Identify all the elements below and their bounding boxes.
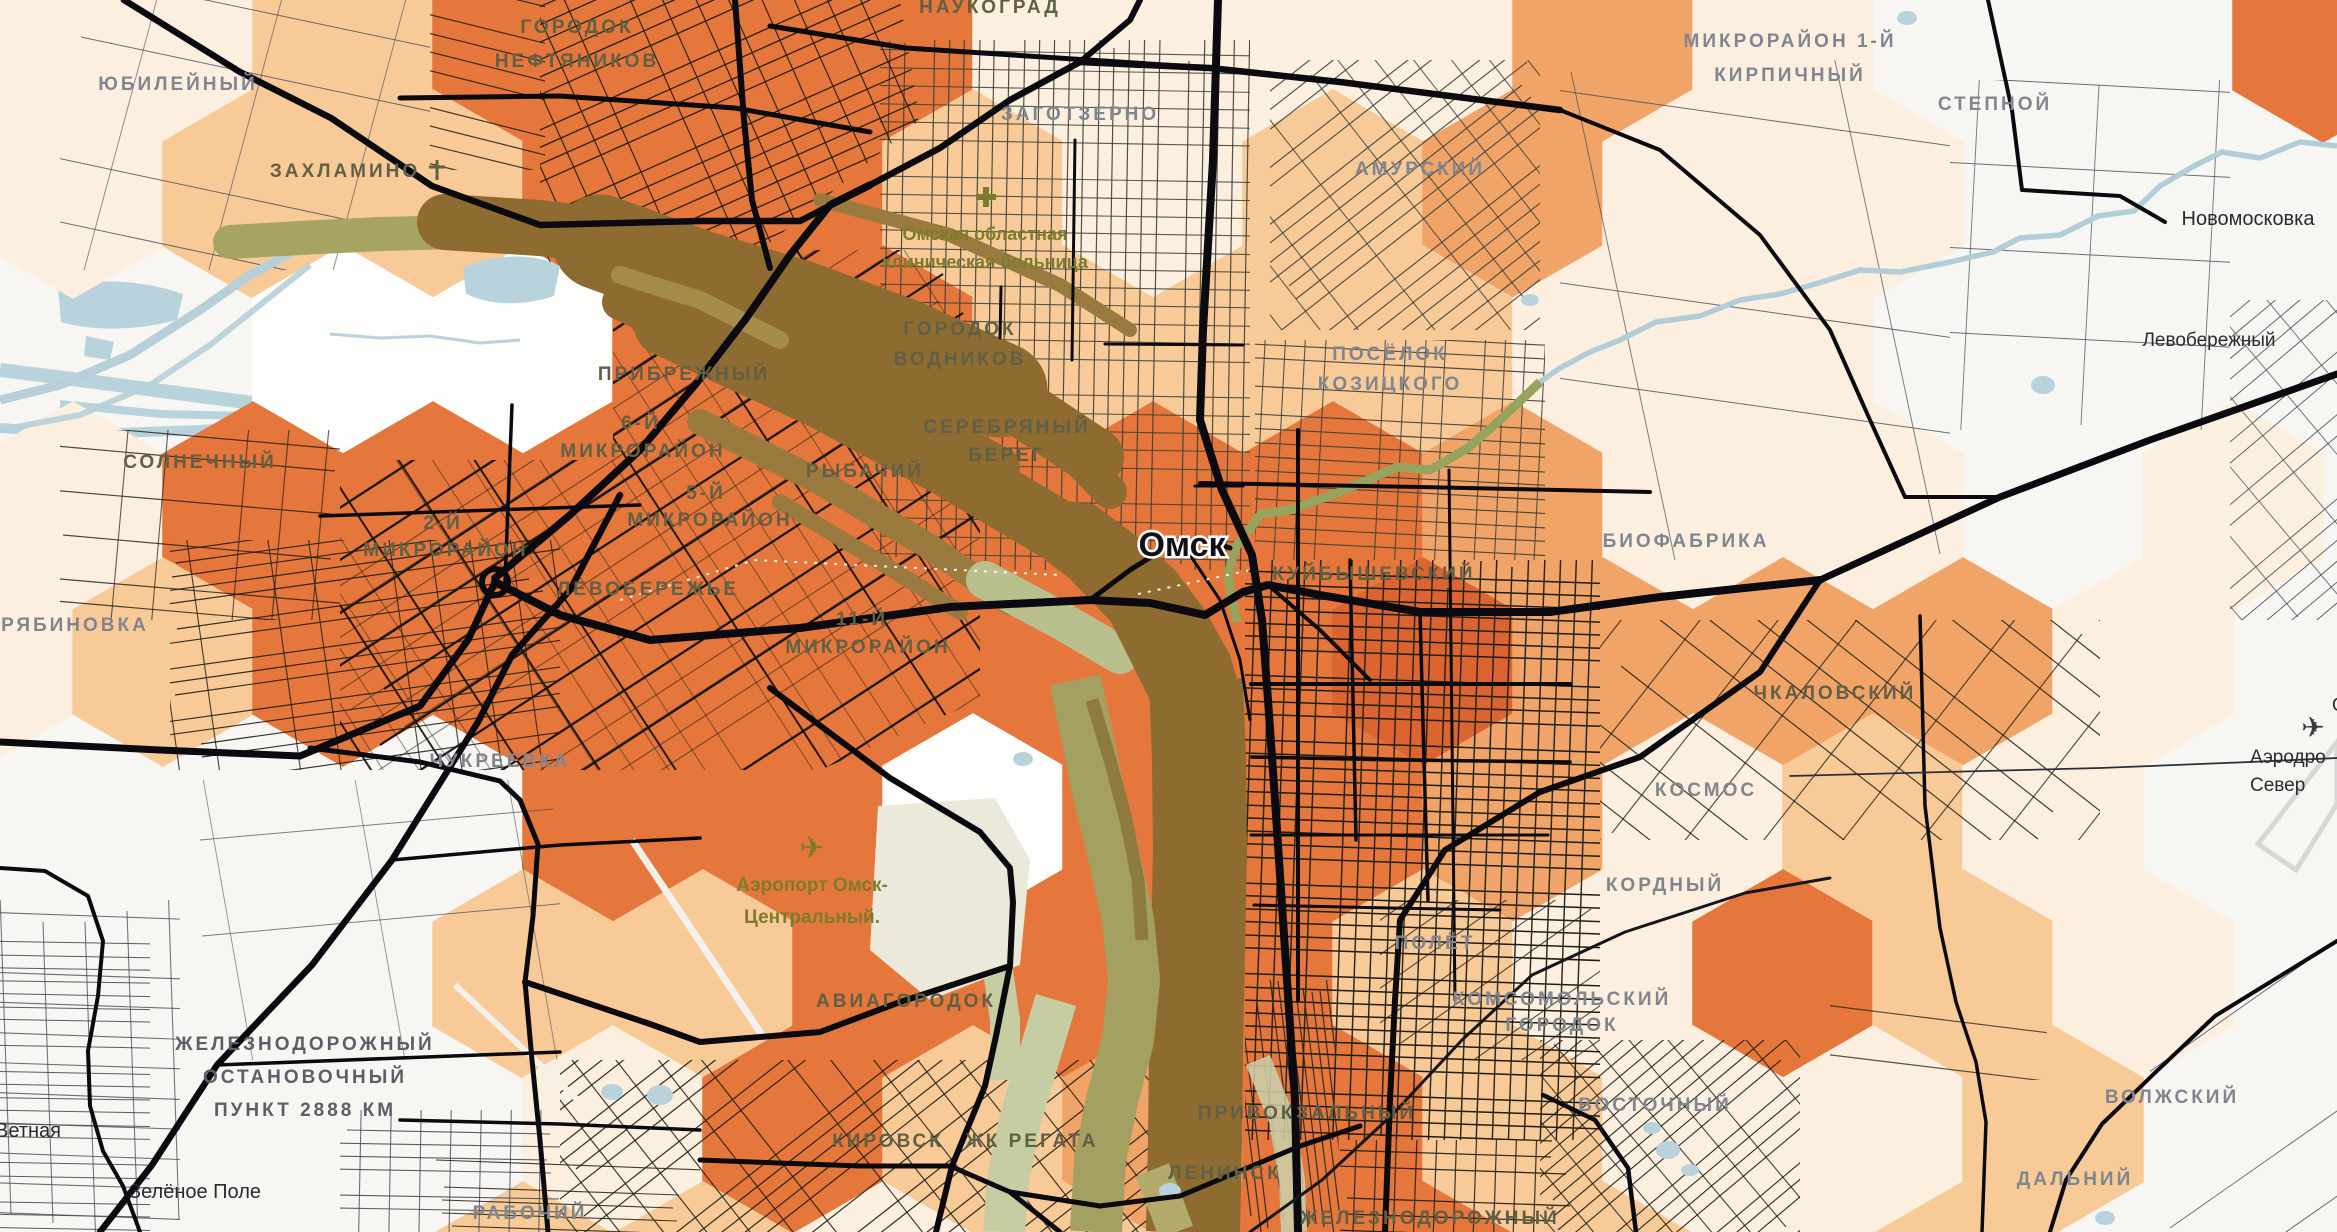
svg-text:ЖЕЛЕЗНОДОРОЖНЫЙ: ЖЕЛЕЗНОДОРОЖНЫЙ xyxy=(174,1033,434,1055)
svg-text:Аэродро: Аэродро xyxy=(2250,747,2326,768)
svg-text:ВОДНИКОВ: ВОДНИКОВ xyxy=(894,349,1027,370)
svg-text:АМУРСКИЙ: АМУРСКИЙ xyxy=(1355,158,1485,180)
svg-text:клиническая больница: клиническая больница xyxy=(882,252,1089,272)
svg-text:ОСТАНОВОЧНЫЙ: ОСТАНОВОЧНЫЙ xyxy=(203,1066,407,1088)
svg-text:11-Й: 11-Й xyxy=(836,608,888,630)
svg-text:СОЛНЕЧНЫЙ: СОЛНЕЧНЫЙ xyxy=(123,451,277,473)
svg-text:✈: ✈ xyxy=(799,832,824,865)
svg-text:ГОРОДОК: ГОРОДОК xyxy=(520,17,633,38)
svg-text:ЛЕНИНСК: ЛЕНИНСК xyxy=(1168,1163,1281,1184)
svg-text:Ветная: Ветная xyxy=(0,1120,61,1142)
svg-text:СЕРЕБРЯНЫЙ: СЕРЕБРЯНЫЙ xyxy=(923,416,1090,438)
svg-text:НЕФТЯНИКОВ: НЕФТЯНИКОВ xyxy=(495,51,659,72)
svg-text:РЫБАЧИЙ: РЫБАЧИЙ xyxy=(806,460,924,482)
svg-text:ЮБИЛЕЙНЫЙ: ЮБИЛЕЙНЫЙ xyxy=(98,73,258,95)
svg-text:Левобережный: Левобережный xyxy=(2142,330,2275,351)
svg-text:КОЗИЦКОГО: КОЗИЦКОГО xyxy=(1318,374,1463,395)
svg-text:ДАЛЬНИЙ: ДАЛЬНИЙ xyxy=(2017,1168,2134,1190)
svg-text:КИРОВСК: КИРОВСК xyxy=(832,1131,944,1152)
svg-text:Центральный.: Центральный. xyxy=(744,907,880,928)
svg-text:ПУНКТ 2888 КМ: ПУНКТ 2888 КМ xyxy=(214,1100,396,1121)
svg-text:Новомосковка: Новомосковка xyxy=(2182,208,2316,230)
svg-text:2-Й: 2-Й xyxy=(423,512,463,534)
svg-text:ВОЛЖСКИЙ: ВОЛЖСКИЙ xyxy=(2105,1086,2239,1108)
svg-text:Омская областная: Омская областная xyxy=(903,224,1068,244)
svg-text:Север: Север xyxy=(2250,775,2305,796)
svg-text:МИКРОРАЙОН: МИКРОРАЙОН xyxy=(627,509,792,531)
svg-text:ЗАХЛАМИНО: ЗАХЛАМИНО xyxy=(270,161,420,182)
svg-text:ЗАГОТЗЕРНО: ЗАГОТЗЕРНО xyxy=(1001,104,1159,125)
svg-text:ПРИБРЕЖНЫЙ: ПРИБРЕЖНЫЙ xyxy=(598,363,770,385)
svg-text:ПОЛЁТ: ПОЛЁТ xyxy=(1395,933,1476,954)
svg-text:ЖЕЛЕЗНОДОРОЖНЫЙ: ЖЕЛЕЗНОДОРОЖНЫЙ xyxy=(1299,1207,1559,1229)
svg-text:МИКРОРАЙОН: МИКРОРАЙОН xyxy=(363,539,528,561)
svg-text:✈: ✈ xyxy=(2301,712,2324,743)
svg-text:КИРПИЧНЫЙ: КИРПИЧНЫЙ xyxy=(1714,64,1866,86)
svg-text:НАУКОГРАД: НАУКОГРАД xyxy=(919,0,1061,18)
svg-text:5-Й: 5-Й xyxy=(686,482,726,504)
svg-text:ЖК РЕГАТА: ЖК РЕГАТА xyxy=(965,1131,1099,1152)
svg-text:АВИАГОРОДОК: АВИАГОРОДОК xyxy=(816,991,996,1012)
svg-text:ПРИВОКЗАЛЬНЫЙ: ПРИВОКЗАЛЬНЫЙ xyxy=(1198,1102,1416,1124)
svg-text:КОСМОС: КОСМОС xyxy=(1655,780,1757,801)
svg-text:ПОСЁЛОК: ПОСЁЛОК xyxy=(1332,344,1448,365)
svg-text:РАБОЧИЙ: РАБОЧИЙ xyxy=(473,1202,588,1224)
svg-text:ЛЕВОБЕРЕЖЬЕ: ЛЕВОБЕРЕЖЬЕ xyxy=(557,579,739,600)
svg-text:Омск: Омск xyxy=(1138,526,1226,564)
svg-text:РЯБИНОВКА: РЯБИНОВКА xyxy=(1,615,149,636)
svg-text:КОРДНЫЙ: КОРДНЫЙ xyxy=(1606,874,1724,896)
svg-text:ГОРОДОК: ГОРОДОК xyxy=(903,319,1016,340)
svg-text:Аэропорт Омск-: Аэропорт Омск- xyxy=(736,875,888,896)
svg-text:МИКРОРАЙОН: МИКРОРАЙОН xyxy=(785,636,950,658)
svg-text:ЧУКРЕЕВКА: ЧУКРЕЕВКА xyxy=(430,751,571,772)
svg-text:КУЙБЫШЕВСКИЙ: КУЙБЫШЕВСКИЙ xyxy=(1272,563,1475,585)
svg-text:ВОСТОЧНЫЙ: ВОСТОЧНЫЙ xyxy=(1578,1094,1732,1116)
svg-text:БИОФАБРИКА: БИОФАБРИКА xyxy=(1603,531,1770,552)
svg-text:ЧКАЛОВСКИЙ: ЧКАЛОВСКИЙ xyxy=(1754,682,1917,704)
svg-text:ГОРОДОК: ГОРОДОК xyxy=(1505,1015,1618,1036)
svg-text:О: О xyxy=(2332,695,2337,716)
svg-text:6-Й: 6-Й xyxy=(621,412,661,434)
svg-text:БЕРЕГ: БЕРЕГ xyxy=(968,445,1045,466)
svg-text:МИКРОРАЙОН 1-Й: МИКРОРАЙОН 1-Й xyxy=(1684,30,1897,52)
svg-text:СТЕПНОЙ: СТЕПНОЙ xyxy=(1938,93,2052,115)
svg-text:Зелёное Поле: Зелёное Поле xyxy=(129,1181,261,1203)
svg-text:КОМСОМОЛЬСКИЙ: КОМСОМОЛЬСКИЙ xyxy=(1453,988,1672,1010)
svg-text:МИКРОРАЙОН: МИКРОРАЙОН xyxy=(560,440,725,462)
